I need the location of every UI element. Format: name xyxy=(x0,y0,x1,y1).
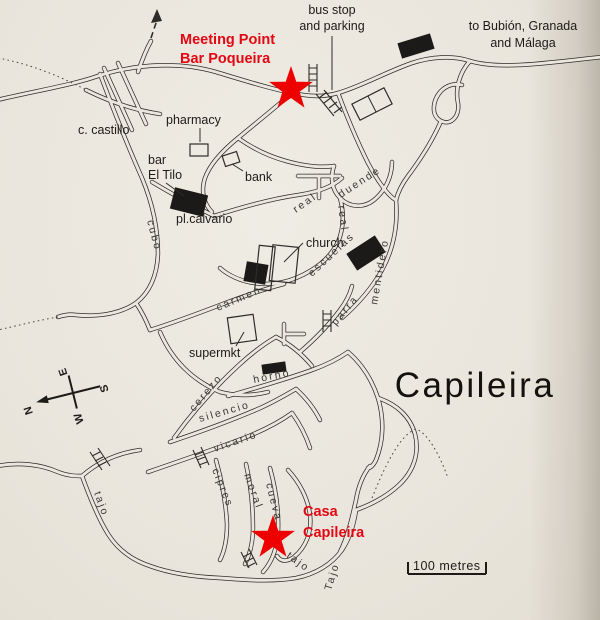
road-exit-arrow xyxy=(151,9,162,38)
label-bank: bank xyxy=(245,170,273,184)
label-pharmacy: pharmacy xyxy=(166,113,222,127)
label-bar-el-tilo: barEl Tilo xyxy=(148,153,182,182)
compass-w: W xyxy=(72,411,87,425)
street-label-cipres: cipres xyxy=(209,467,236,510)
compass-rose: N E S W xyxy=(15,358,118,437)
scale-bar: 100 metres xyxy=(408,559,486,574)
road-fill xyxy=(0,41,600,580)
capileira-map: N E S W Capileira 100 metres realrealdue… xyxy=(0,0,600,620)
building-pharmacy xyxy=(190,144,208,156)
road-network xyxy=(0,41,600,580)
leader-bank xyxy=(232,164,243,171)
scale-label: 100 metres xyxy=(413,559,481,573)
street-label-carmen: carmen xyxy=(214,284,263,314)
street-label-real: real xyxy=(335,205,351,233)
street-label-cueva: cueva xyxy=(263,482,284,523)
compass-north-arrowhead xyxy=(35,395,49,406)
compass-s: S xyxy=(98,383,112,394)
markers xyxy=(251,66,313,557)
building-bank xyxy=(222,151,240,166)
page-title: Capileira xyxy=(395,366,556,405)
street-label-cubo: cubo xyxy=(144,219,164,253)
label-to-bubion: to Bubión, Granadaand Málaga xyxy=(469,19,577,50)
trail-top-left xyxy=(0,58,88,91)
label-pl-calvario: pl.calvario xyxy=(176,212,232,226)
street-label-duende: duende xyxy=(336,164,383,200)
label-church: church xyxy=(306,236,344,250)
leader-supermkt xyxy=(236,332,244,346)
building-court xyxy=(352,88,392,120)
label-supermkt: supermkt xyxy=(189,346,241,360)
building-filled-top xyxy=(397,33,434,58)
trail-left xyxy=(0,317,58,330)
label-c-castillo: c. castillo xyxy=(78,123,129,137)
label-meeting-point: Meeting PointBar Poqueira xyxy=(180,32,275,67)
building-supermkt xyxy=(227,314,256,343)
meeting-point-star xyxy=(269,66,313,108)
map-page: N E S W Capileira 100 metres realrealdue… xyxy=(0,0,600,620)
street-label-vicario: vicario xyxy=(212,429,259,455)
poi-labels: bus stopand parkingto Bubión, Granadaand… xyxy=(78,3,577,541)
label-bus-stop: bus stopand parking xyxy=(299,3,364,33)
compass-n: N xyxy=(22,405,36,416)
street-label-moral: moral xyxy=(241,472,265,511)
